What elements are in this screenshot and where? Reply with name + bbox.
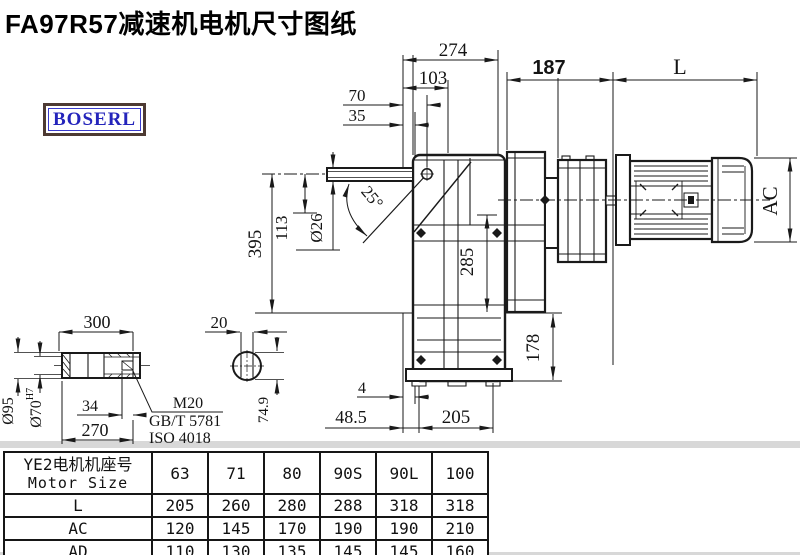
dim-103: 103 bbox=[403, 68, 448, 89]
dim-74-9: 74.9 bbox=[255, 337, 284, 423]
table-header-cn: YE2电机机座号 bbox=[5, 455, 151, 474]
dim-AC-label: AC bbox=[758, 186, 782, 215]
row-AC-v0: 120 bbox=[152, 517, 208, 540]
row-AC-v1: 145 bbox=[208, 517, 264, 540]
row-AC-v4: 190 bbox=[376, 517, 432, 540]
dim-103-label: 103 bbox=[419, 68, 448, 89]
row-AD-label: AD bbox=[4, 540, 152, 555]
row-AC-label: AC bbox=[4, 517, 152, 540]
drawing-page: FA97R57减速机电机尺寸图纸 BOSERL bbox=[0, 0, 800, 555]
dim-187: 187 bbox=[507, 57, 613, 80]
size-col-100: 100 bbox=[432, 452, 488, 494]
size-col-90S: 90S bbox=[320, 452, 376, 494]
table-header-en: Motor Size bbox=[5, 474, 151, 492]
thread-m20-label: M20 bbox=[173, 395, 203, 412]
row-AC-v5: 210 bbox=[432, 517, 488, 540]
dim-L: L bbox=[613, 54, 757, 80]
table-row-AC: AC 120 145 170 190 190 210 bbox=[4, 517, 488, 540]
size-col-71: 71 bbox=[208, 452, 264, 494]
dim-285-label: 285 bbox=[457, 248, 478, 277]
row-L-label: L bbox=[4, 494, 152, 517]
dim-205-label: 205 bbox=[442, 407, 471, 428]
dim-angle-25: 25° bbox=[347, 182, 387, 236]
dim-178-label: 178 bbox=[523, 334, 544, 363]
row-AC-v2: 170 bbox=[264, 517, 320, 540]
dim-395-label: 395 bbox=[245, 230, 266, 259]
row-L-v3: 288 bbox=[320, 494, 376, 517]
row-AD-v1: 130 bbox=[208, 540, 264, 555]
size-col-80: 80 bbox=[264, 452, 320, 494]
dim-178: 178 bbox=[523, 314, 553, 380]
dim-dia95-label: Ø95 bbox=[0, 397, 17, 425]
dim-dia26: Ø26 bbox=[296, 152, 340, 250]
dim-L-label: L bbox=[673, 54, 686, 79]
dim-4: 4 bbox=[357, 380, 429, 397]
dim-4-label: 4 bbox=[358, 380, 366, 397]
dim-274: 274 bbox=[403, 40, 498, 61]
dim-70-label: 70 bbox=[349, 86, 366, 105]
dim-dia70-label: Ø70 bbox=[28, 400, 45, 428]
row-AD-v0: 110 bbox=[152, 540, 208, 555]
output-shaft bbox=[327, 168, 413, 181]
row-L-v0: 205 bbox=[152, 494, 208, 517]
thread-iso-label: ISO 4018 bbox=[149, 430, 211, 447]
side-view-motor-assembly bbox=[498, 152, 770, 312]
gear-unit-bell bbox=[558, 160, 606, 262]
dimension-annotations: 274 103 70 35 187 L bbox=[0, 40, 797, 447]
dim-34-label: 34 bbox=[82, 398, 98, 415]
table-header-label-cell: YE2电机机座号 Motor Size bbox=[4, 452, 152, 494]
dim-274-label: 274 bbox=[439, 40, 468, 61]
size-col-90L: 90L bbox=[376, 452, 432, 494]
dim-270-label: 270 bbox=[82, 420, 109, 440]
motor-size-table: YE2电机机座号 Motor Size 63 71 80 90S 90L 100… bbox=[3, 451, 489, 555]
thread-gbt-label: GB/T 5781 bbox=[149, 413, 221, 430]
dim-h7-tolerance-label: H7 bbox=[25, 388, 36, 400]
table-row-L: L 205 260 280 288 318 318 bbox=[4, 494, 488, 517]
dim-35-label: 35 bbox=[349, 106, 366, 125]
row-L-v2: 280 bbox=[264, 494, 320, 517]
dim-113-label: 113 bbox=[272, 216, 291, 241]
dim-angle-25-label: 25° bbox=[357, 182, 387, 212]
row-L-v4: 318 bbox=[376, 494, 432, 517]
dim-395: 395 bbox=[245, 174, 272, 313]
row-AD-v4: 145 bbox=[376, 540, 432, 555]
dim-300: 300 bbox=[59, 312, 133, 351]
row-AD-v2: 135 bbox=[264, 540, 320, 555]
dim-187-label: 187 bbox=[532, 57, 565, 79]
separator-band bbox=[0, 441, 800, 448]
dim-20-label: 20 bbox=[211, 313, 228, 332]
row-L-v1: 260 bbox=[208, 494, 264, 517]
table-row-AD: AD 110 130 135 145 145 160 bbox=[4, 540, 488, 555]
dim-205: 205 bbox=[419, 407, 493, 428]
dim-35: 35 bbox=[343, 106, 429, 125]
row-L-v5: 318 bbox=[432, 494, 488, 517]
dim-300-label: 300 bbox=[84, 312, 111, 332]
dim-dia70h7: Ø70 H7 bbox=[25, 341, 62, 428]
size-col-63: 63 bbox=[152, 452, 208, 494]
row-AC-v3: 190 bbox=[320, 517, 376, 540]
shaft-detail-view bbox=[54, 350, 264, 382]
row-AD-v3: 145 bbox=[320, 540, 376, 555]
dim-AC: AC bbox=[754, 158, 797, 242]
dim-74-9-label: 74.9 bbox=[256, 397, 272, 423]
table-header-row: YE2电机机座号 Motor Size 63 71 80 90S 90L 100 bbox=[4, 452, 488, 494]
dim-48-5-label: 48.5 bbox=[335, 407, 367, 427]
housing-profile bbox=[507, 152, 545, 312]
row-AD-v5: 160 bbox=[432, 540, 488, 555]
dim-20: 20 bbox=[205, 313, 287, 352]
dim-dia26-label: Ø26 bbox=[307, 213, 326, 242]
dim-48-5: 48.5 bbox=[325, 407, 419, 428]
thread-callout: M20 GB/T 5781 ISO 4018 bbox=[133, 371, 223, 447]
